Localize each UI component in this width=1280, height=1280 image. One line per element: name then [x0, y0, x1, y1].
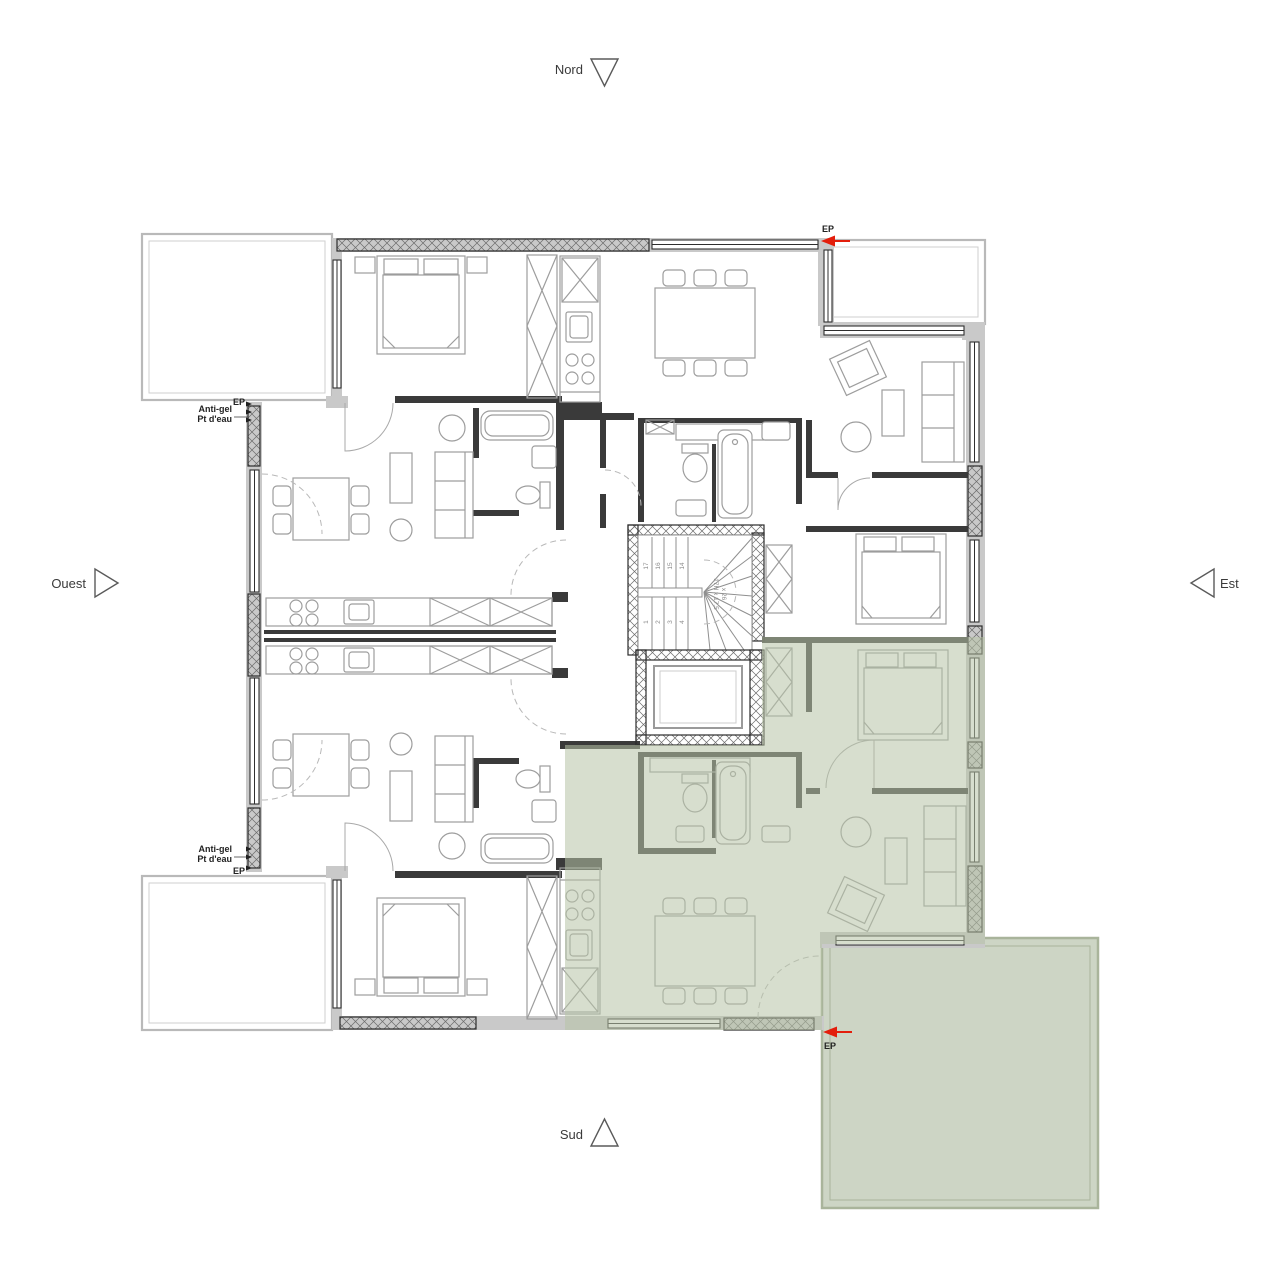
- plant-southwest: [390, 733, 412, 755]
- kitchen-northwest: [266, 598, 552, 626]
- bedroom-northeast: [766, 534, 946, 624]
- compass-east: Est: [1191, 569, 1239, 597]
- floor-plan-page: Nord Sud Ouest Est: [0, 0, 1280, 1280]
- terrace-green: [822, 938, 1098, 1208]
- toilet-northeast: [682, 444, 708, 482]
- kitchen-southwest: [266, 646, 552, 674]
- door-arc-nw-bedroom: [345, 403, 393, 451]
- toilet-southwest: [516, 766, 550, 792]
- south-triangle-icon: [591, 1119, 618, 1146]
- coffee-table-northwest: [390, 453, 412, 503]
- stair-dim-1: 17H x 17.5: [712, 578, 719, 610]
- sink-northeast-1: [762, 422, 790, 440]
- bed-northwest: [355, 256, 487, 354]
- stair-dim-2: x 26: [720, 588, 727, 601]
- ep-label-ne: EP: [822, 224, 834, 234]
- door-arc-sw-bedroom: [345, 823, 393, 871]
- stair-core: 17 16 15 14 1 2 3 4 17H x 17.5 x 26: [628, 525, 764, 745]
- antigel-label-n: Anti-gel: [199, 404, 233, 414]
- balcony-southwest: [142, 876, 332, 1030]
- sofa-northwest: [435, 452, 473, 538]
- plant-northwest: [390, 519, 412, 541]
- compass-south: Sud: [560, 1119, 618, 1146]
- sink-northeast-2: [676, 500, 706, 516]
- east-triangle-icon: [1191, 569, 1214, 597]
- door-arc-ne-bedroom: [838, 478, 870, 510]
- ep-label-wn: EP: [233, 397, 245, 407]
- pt-eau-label-n: Pt d'eau: [197, 414, 232, 424]
- elevator: [636, 650, 764, 745]
- compass-west-label: Ouest: [51, 576, 86, 591]
- bathtub-northeast: [718, 430, 752, 518]
- stair-num-4: 4: [679, 620, 686, 624]
- balcony-northwest: [142, 234, 332, 400]
- elevator-car: [654, 666, 742, 728]
- stair-num-3: 3: [667, 620, 674, 624]
- armchair-northeast: [830, 341, 887, 396]
- entry-arc-ne: [605, 470, 641, 506]
- stair-num-14: 14: [679, 562, 686, 570]
- north-triangle-icon: [591, 59, 618, 86]
- coffee-table-southwest: [390, 771, 412, 821]
- compass-west: Ouest: [51, 569, 118, 597]
- plant-northeast: [841, 422, 871, 452]
- dining-table-southwest: [273, 734, 369, 796]
- bathroom-northeast: [646, 420, 790, 518]
- antigel-label-s: Anti-gel: [199, 844, 233, 854]
- compass-north-label: Nord: [555, 62, 583, 77]
- sofa-southwest: [435, 736, 473, 822]
- compass-east-label: Est: [1220, 576, 1239, 591]
- floor-plan-svg: Nord Sud Ouest Est: [0, 0, 1280, 1280]
- ep-label-south: EP: [824, 1041, 836, 1051]
- coffee-table-northeast: [882, 390, 904, 436]
- toilet-northwest: [516, 482, 550, 508]
- balcony-northeast: [820, 240, 985, 324]
- pt-eau-label-s: Pt d'eau: [197, 854, 232, 864]
- compass-north: Nord: [555, 59, 618, 86]
- compass-south-label: Sud: [560, 1127, 583, 1142]
- west-triangle-icon: [95, 569, 118, 597]
- stair-num-2: 2: [655, 620, 662, 624]
- sofa-northeast: [922, 362, 964, 462]
- kitchen-northeast: [560, 256, 600, 402]
- stair-num-1: 1: [643, 620, 650, 624]
- living-northeast: [830, 341, 964, 462]
- entry-arc-sw: [511, 679, 566, 734]
- annotation-west-south: Anti-gel Pt d'eau EP: [197, 844, 252, 876]
- wardrobe-southwest: [527, 876, 557, 1019]
- stair-num-15: 15: [667, 562, 674, 570]
- staircase: 17 16 15 14 1 2 3 4 17H x 17.5 x 26: [638, 535, 752, 650]
- dining-table-northeast: [655, 270, 755, 376]
- ep-label-ws: EP: [233, 866, 245, 876]
- stair-num-16: 16: [655, 562, 662, 570]
- entry-arc-nw: [511, 540, 566, 595]
- bed-southwest: [355, 898, 487, 996]
- stair-num-17: 17: [643, 562, 650, 570]
- wardrobe-northwest: [527, 255, 557, 398]
- dining-table-northwest: [273, 478, 369, 540]
